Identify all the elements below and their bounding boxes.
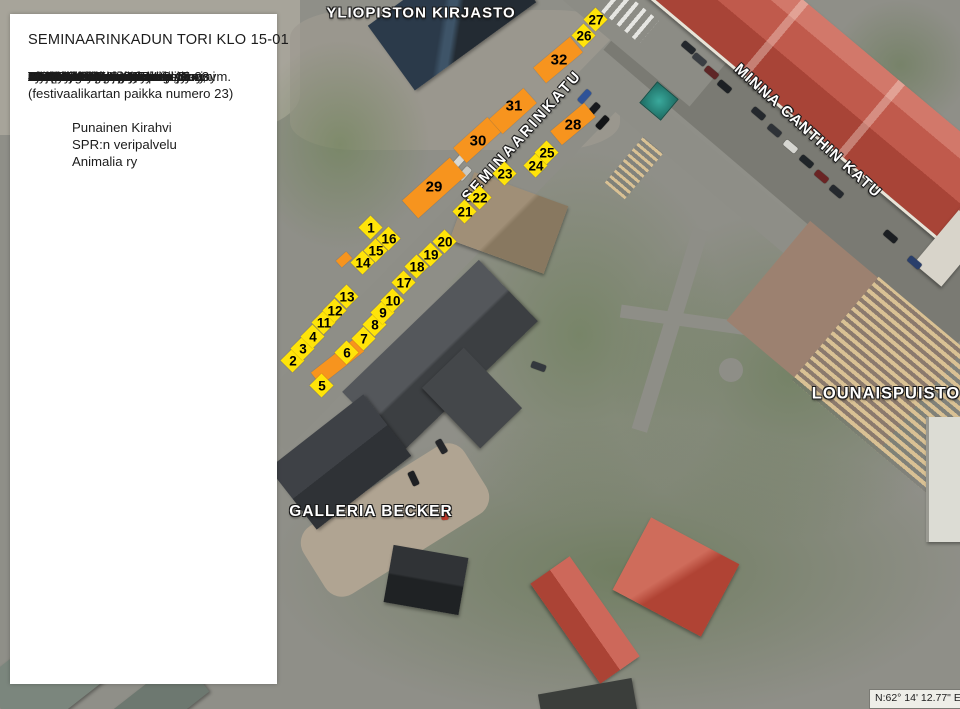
area-label-galleria-becker: GALLERIA BECKER	[289, 503, 452, 521]
festival-map: YLIOPISTON KIRJASTOSEMINAARINKATUMINNA C…	[0, 0, 960, 709]
marker-number: 13	[339, 290, 354, 304]
marker-number: 21	[457, 205, 472, 219]
marker-number: 20	[437, 235, 452, 249]
marker-number: 5	[318, 379, 326, 393]
marker-number: 17	[396, 276, 411, 290]
legend-section2-subtitle: (festivaalikartan paikka numero 23)	[28, 85, 269, 102]
marker-number: 7	[360, 332, 368, 346]
marker-number: 32	[551, 53, 568, 68]
legend-entry-name: Finbat: Kalaravintola	[28, 68, 148, 85]
marker-number: 11	[317, 316, 331, 330]
marker-number: 15	[368, 244, 383, 258]
marker-number: 24	[528, 159, 543, 173]
marker-number: 6	[343, 346, 351, 360]
legend-section2-item: Animalia ry	[28, 153, 269, 170]
marker-number: 23	[497, 167, 512, 181]
coordinates-text: N:62° 14' 12.77" E:2	[875, 692, 960, 704]
marker-number: 4	[309, 330, 317, 344]
marker-number: 25	[539, 146, 554, 160]
legend-content: SEMINAARINKADUN TORI KLO 15-01 1Mysteeri…	[10, 14, 277, 170]
coordinates-box: N:62° 14' 12.77" E:2	[869, 689, 960, 709]
marker-number: 22	[472, 191, 487, 205]
legend-section2-item: SPR:n veripalvelu	[28, 136, 269, 153]
marker-number: 28	[565, 118, 582, 133]
marker-number: 1	[367, 221, 375, 235]
legend-panel: SEMINAARINKADUN TORI KLO 15-01 1Mysteeri…	[10, 14, 277, 684]
marker-number: 9	[379, 306, 387, 320]
area-label-lounaispuisto: LOUNAISPUISTO	[812, 385, 960, 404]
legend-section2-items: Punainen KirahviSPR:n veripalveluAnimali…	[28, 119, 269, 170]
marker-number: 12	[327, 304, 342, 318]
marker-number: 10	[385, 294, 400, 308]
legend-title: SEMINAARINKADUN TORI KLO 15-01	[28, 32, 269, 48]
marker-number: 2	[289, 354, 297, 368]
park-plaza-circle	[719, 358, 743, 382]
building-white-right-edge	[926, 417, 960, 542]
marker-number: 16	[381, 232, 396, 246]
marker-number: 31	[506, 99, 523, 114]
marker-number: 27	[588, 13, 603, 27]
marker-number: 3	[299, 342, 307, 356]
marker-number: 30	[470, 134, 487, 149]
marker-number: 19	[423, 248, 438, 262]
marker-number: 29	[426, 180, 443, 195]
area-label-yliopiston-kirjasto: YLIOPISTON KIRJASTO	[326, 5, 515, 22]
marker-number: 26	[576, 29, 591, 43]
marker-number: 14	[355, 256, 370, 270]
marker-number: 18	[409, 260, 424, 274]
legend-section2-item: Punainen Kirahvi	[28, 119, 269, 136]
